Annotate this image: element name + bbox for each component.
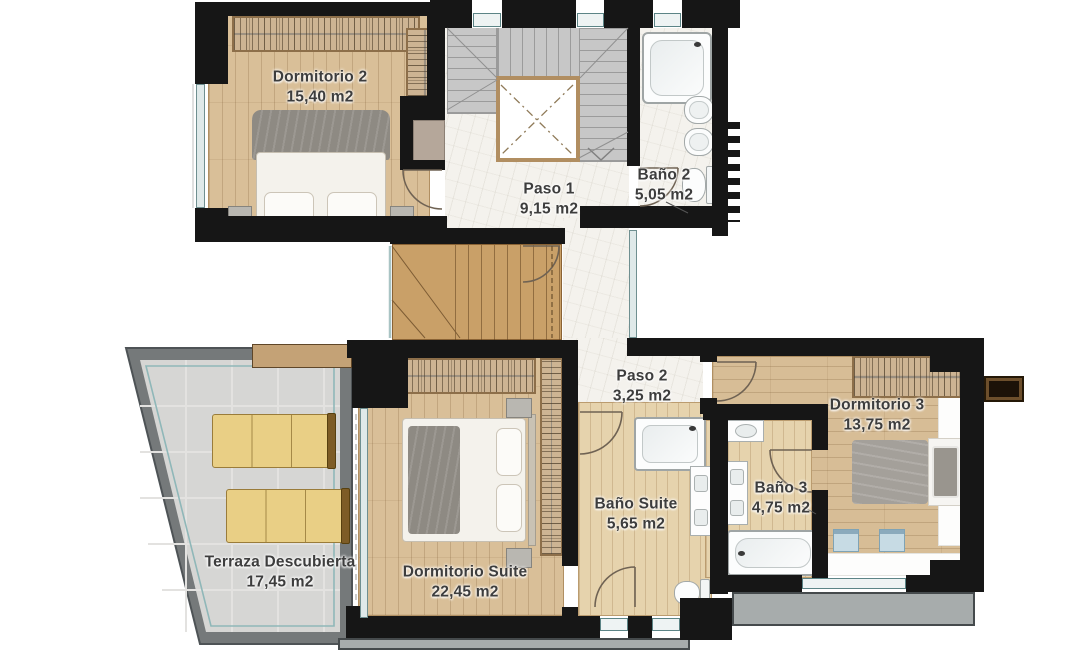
- bathtub-basin: [650, 40, 704, 96]
- wall-segment: [195, 2, 228, 84]
- stairs-wood-lower: [392, 244, 562, 340]
- balcony-slab: [732, 592, 975, 626]
- beam-core: [989, 381, 1019, 397]
- wall-segment: [562, 340, 578, 566]
- stair-treads: [455, 245, 563, 341]
- stool: [833, 529, 859, 552]
- wall-segment: [604, 0, 653, 28]
- lounger-frame: [327, 413, 336, 469]
- shower-drain: [689, 426, 696, 431]
- window-glass-corridor: [629, 230, 637, 338]
- wall-segment: [627, 26, 640, 166]
- bathtub-bano-3: [727, 530, 819, 576]
- wall-segment: [715, 338, 962, 356]
- floor-plan: Dormitorio 2 15,40 m2 Paso 1 9,15 m2 Bañ…: [0, 0, 1070, 650]
- window-sill: [654, 13, 681, 27]
- wall-segment: [628, 616, 652, 638]
- sink-basin: [694, 509, 708, 526]
- wardrobe-suite-east: [540, 358, 563, 556]
- room-label-terraza: Terraza Descubierta 17,45 m2: [205, 553, 356, 594]
- wall-segment: [390, 228, 565, 244]
- wall-segment: [400, 118, 413, 164]
- sink-basin: [694, 475, 708, 492]
- wall-segment: [682, 0, 740, 28]
- stairs-concrete-right-run: [579, 26, 629, 162]
- wall-segment: [812, 404, 828, 450]
- window-sill: [577, 13, 604, 27]
- room-label-paso-2: Paso 2 3,25 m2: [613, 367, 671, 408]
- lounger-frame: [341, 488, 350, 544]
- room-name: Baño Suite: [595, 495, 678, 515]
- vanity-bano-3: [726, 461, 748, 525]
- bed-pillow: [496, 484, 522, 532]
- room-area: 3,25 m2: [613, 387, 671, 407]
- bed-blanket: [408, 426, 460, 534]
- window-sill: [473, 13, 501, 27]
- shower-bano-suite: [634, 417, 706, 471]
- room-label-bano-suite: Baño Suite 5,65 m2: [595, 495, 678, 536]
- bathtub-bano-2: [642, 32, 712, 104]
- balcony-slab: [338, 638, 690, 650]
- room-label-dormitorio-3: Dormitorio 3 13,75 m2: [830, 396, 925, 437]
- room-area: 13,75 m2: [830, 416, 925, 436]
- duct-niche: [413, 120, 445, 162]
- sink-basin: [735, 424, 757, 438]
- wardrobe-suite-top: [404, 358, 536, 394]
- room-area: 5,65 m2: [595, 515, 678, 535]
- wall-segment: [812, 490, 828, 578]
- wall-segment: [680, 598, 732, 640]
- sink-bano-2: [684, 128, 714, 156]
- sink-basin: [689, 133, 709, 151]
- stool: [879, 529, 905, 552]
- room-name: Paso 2: [613, 367, 671, 387]
- sink-basin: [730, 469, 744, 485]
- room-label-paso-1: Paso 1 9,15 m2: [520, 180, 578, 221]
- room-name: Baño 2: [635, 166, 693, 186]
- balcony-door-sill: [802, 578, 906, 589]
- wall-segment: [346, 606, 360, 638]
- room-area: 9,15 m2: [520, 200, 578, 220]
- bed-dormitorio-suite: [402, 414, 536, 546]
- wall-segment: [195, 2, 445, 16]
- wall-segment: [400, 96, 445, 120]
- bathtub-faucet: [694, 42, 701, 47]
- bed-dormitorio-3: [852, 438, 964, 506]
- wall-segment: [712, 575, 802, 592]
- room-name: Baño 3: [752, 479, 810, 499]
- room-name: Dormitorio 3: [830, 396, 925, 416]
- shower-tray: [642, 425, 698, 463]
- bathtub-basin: [735, 538, 811, 568]
- sink-basin: [689, 101, 709, 119]
- wall-segment: [960, 338, 984, 592]
- wall-segment: [930, 560, 982, 592]
- vanity-bano-suite: [690, 466, 712, 536]
- wall-segment: [502, 0, 576, 28]
- wall-segment: [352, 340, 408, 408]
- room-label-dormitorio-2: Dormitorio 2 15,40 m2: [273, 68, 368, 109]
- exterior-beam: [984, 376, 1024, 402]
- room-name: Dormitorio Suite: [403, 563, 528, 583]
- window-sill: [600, 618, 628, 631]
- bed-duvet: [852, 440, 928, 504]
- bathtub-drain: [738, 551, 745, 556]
- sink-counter-bano-3: [726, 420, 764, 442]
- bed-dormitorio-2: [250, 110, 392, 232]
- wall-segment: [430, 0, 472, 28]
- sun-lounger-1: [212, 414, 334, 468]
- room-label-bano-3: Baño 3 4,75 m2: [752, 479, 810, 520]
- room-area: 5,05 m2: [635, 186, 693, 206]
- bed-cushion: [932, 446, 959, 498]
- bed-pillow: [496, 428, 522, 476]
- sun-lounger-2: [226, 489, 348, 543]
- stairs-concrete-top-run: [497, 26, 580, 78]
- window-sill: [652, 618, 680, 631]
- stone-cladding-strip: [252, 344, 352, 368]
- room-name: Paso 1: [520, 180, 578, 200]
- wall-segment: [580, 206, 714, 228]
- room-area: 4,75 m2: [752, 499, 810, 519]
- room-name: Dormitorio 2: [273, 68, 368, 88]
- sliding-door-glass-terrace: [360, 408, 368, 618]
- nightstand: [506, 398, 532, 418]
- stairs-concrete-left-run: [447, 26, 497, 114]
- sink-bano-2: [684, 96, 714, 124]
- room-area: 22,45 m2: [403, 583, 528, 603]
- room-area: 17,45 m2: [205, 573, 356, 593]
- sink-basin: [730, 500, 744, 516]
- floor-corridor: [563, 218, 629, 354]
- wall-segment: [400, 160, 445, 170]
- room-label-dormitorio-suite: Dormitorio Suite 22,45 m2: [403, 563, 528, 604]
- wall-segment: [710, 404, 728, 594]
- wardrobe-dormitorio-2: [232, 16, 420, 52]
- room-label-bano-2: Baño 2 5,05 m2: [635, 166, 693, 207]
- wall-cladding-teeth: [728, 122, 740, 222]
- room-area: 15,40 m2: [273, 88, 368, 108]
- wall-segment: [350, 616, 600, 638]
- wall-segment: [712, 26, 728, 236]
- bed-headboard: [528, 414, 536, 546]
- stairwell-void: [496, 76, 580, 162]
- room-name: Terraza Descubierta: [205, 553, 356, 573]
- window-glass-dormitorio-2: [196, 84, 205, 208]
